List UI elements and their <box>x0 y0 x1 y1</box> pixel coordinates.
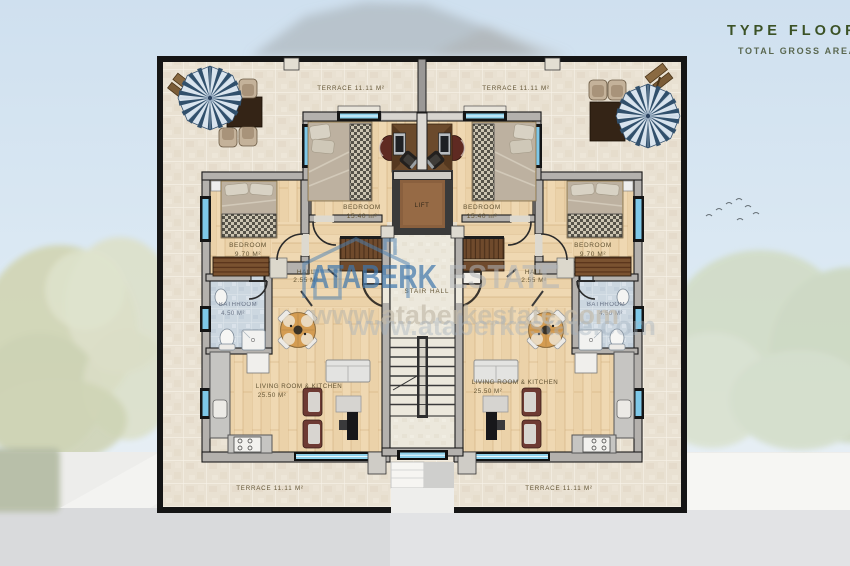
svg-text:BEDROOM: BEDROOM <box>343 204 381 211</box>
svg-text:9.70 M²: 9.70 M² <box>235 251 261 258</box>
svg-text:BATHROOM: BATHROOM <box>219 302 257 308</box>
svg-text:BEDROOM: BEDROOM <box>463 204 501 211</box>
svg-text:TERRACE 11.11 M²: TERRACE 11.11 M² <box>236 485 304 492</box>
svg-text:LIVING ROOM & KITCHEN: LIVING ROOM & KITCHEN <box>472 379 558 386</box>
svg-text:www.ataberkestate.com: www.ataberkestate.com <box>347 311 656 341</box>
svg-text:TYPE FLOOR PLAN: TYPE FLOOR PLAN <box>727 23 850 39</box>
svg-text:15.40 m²: 15.40 m² <box>467 213 498 220</box>
svg-text:ATABERK: ATABERK <box>310 258 437 295</box>
svg-text:25.50 M²: 25.50 M² <box>258 392 286 399</box>
svg-text:25.50 M²: 25.50 M² <box>474 388 502 395</box>
svg-text:TOTAL GROSS AREA : 155 M²: TOTAL GROSS AREA : 155 M² <box>738 46 850 56</box>
svg-text:9.70 M²: 9.70 M² <box>580 251 606 258</box>
svg-text:TERRACE 11.11 M²: TERRACE 11.11 M² <box>525 485 593 492</box>
svg-text:LIFT: LIFT <box>415 203 430 209</box>
svg-text:ESTATE: ESTATE <box>448 258 560 295</box>
svg-text:15.40 m²: 15.40 m² <box>347 213 378 220</box>
svg-text:BEDROOM: BEDROOM <box>574 242 612 249</box>
svg-text:LIVING ROOM & KITCHEN: LIVING ROOM & KITCHEN <box>256 383 342 390</box>
svg-text:TERRACE 11.11 M²: TERRACE 11.11 M² <box>317 85 385 92</box>
svg-text:4.50 M²: 4.50 M² <box>221 311 245 317</box>
svg-text:BEDROOM: BEDROOM <box>229 242 267 249</box>
svg-text:TERRACE 11.11 M²: TERRACE 11.11 M² <box>482 85 550 92</box>
